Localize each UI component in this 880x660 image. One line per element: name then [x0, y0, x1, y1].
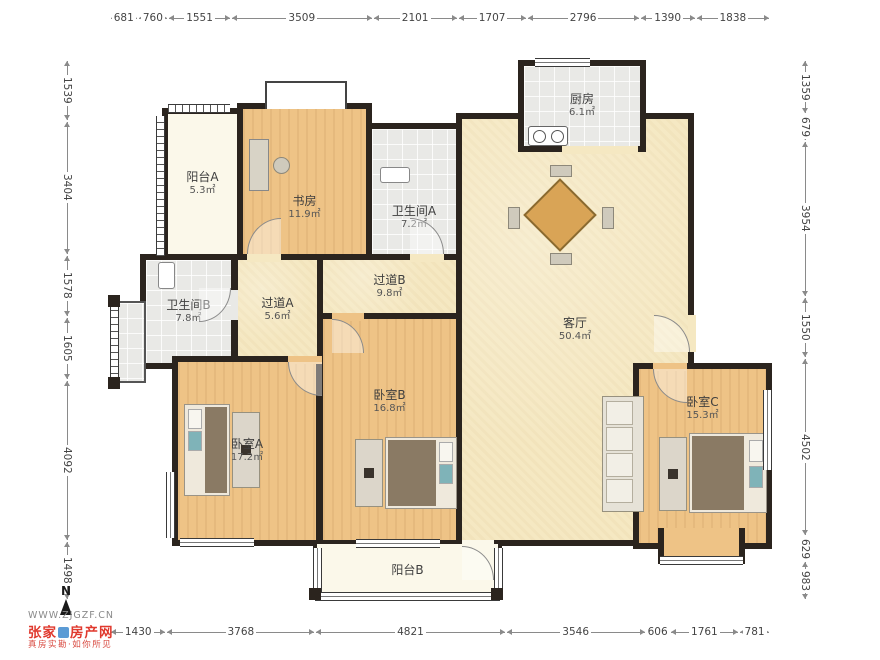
dimension-segment: 1838 [696, 10, 770, 26]
dimension-segment: 3768 [166, 624, 315, 640]
wardrobe [355, 439, 383, 507]
dimension-arrow-icon [640, 629, 645, 635]
dimension-arrow-icon [452, 15, 457, 21]
dimension-segment: 3509 [231, 10, 373, 26]
room-label-study: 书房 11.9㎡ [288, 194, 320, 222]
dimension-value: 606 [646, 626, 670, 638]
dimension-value: 1498 [61, 555, 73, 586]
dimension-segment: 1430 [110, 624, 166, 640]
dimension-arrow-icon [64, 115, 70, 120]
opening-kitchen [562, 146, 638, 154]
window-kitchen [535, 58, 590, 67]
dimension-arrow-icon [64, 381, 70, 386]
dimension-arrow-icon [367, 15, 372, 21]
room-label-living: 客厅 50.4㎡ [559, 316, 591, 344]
room-bathroom-b: 卫生间B 7.8㎡ [140, 254, 237, 369]
dimension-value: 4092 [61, 445, 73, 476]
desk-chair [273, 157, 290, 174]
dimension-value: 1707 [477, 12, 508, 24]
window-bedroom-c [660, 556, 743, 565]
dimension-arrow-icon [64, 61, 70, 66]
room-balcony-a: 阳台A 5.3㎡ [162, 108, 243, 260]
window-balcony-b-left [313, 548, 322, 592]
dimension-segment: 679 [796, 114, 814, 141]
dimension-segment: 2101 [373, 10, 458, 26]
dimension-arrow-icon [225, 15, 230, 21]
dining-table [523, 178, 597, 252]
dimension-segment: 1761 [670, 624, 740, 640]
dimension-value: 1605 [61, 333, 73, 364]
dimension-value: 3768 [226, 626, 257, 638]
dimension-arrow-icon [802, 562, 808, 567]
site-slogan: 真房实勘·如你所见 [28, 638, 112, 650]
dimension-segment: 2796 [527, 10, 640, 26]
dimension-segment: 1550 [796, 297, 814, 358]
dimension-segment: 3404 [58, 121, 76, 255]
toilet [158, 262, 175, 289]
window-bedroom-a-left [166, 472, 175, 538]
room-label-hallway-b: 过道B 9.8㎡ [373, 273, 405, 301]
bed [184, 404, 230, 496]
bed [385, 437, 457, 509]
dimension-value: 3954 [799, 203, 811, 234]
dimension-arrow-icon [64, 318, 70, 323]
dimension-arrow-icon [802, 108, 808, 113]
room-hallway-a: 过道A 5.6㎡ [232, 254, 323, 365]
dimension-arrow-icon [802, 142, 808, 147]
dimension-arrow-icon [64, 249, 70, 254]
dimension-arrow-icon [64, 535, 70, 540]
dimension-arrow-icon [671, 629, 676, 635]
dimension-segment: 1359 [796, 60, 814, 114]
dimension-value: 681 [112, 12, 136, 24]
desk [249, 139, 269, 191]
window-bedroom-a [180, 538, 254, 547]
room-label-kitchen: 厨房 6.1㎡ [569, 92, 595, 120]
dimension-value: 1390 [652, 12, 683, 24]
dimension-segment: 4092 [58, 380, 76, 541]
dimension-arrow-icon [167, 629, 172, 635]
dimension-segment: 3954 [796, 141, 814, 297]
dimension-segment: 4821 [315, 624, 505, 640]
dimension-arrow-icon [169, 15, 174, 21]
sofa [602, 396, 644, 512]
dimension-arrow-icon [802, 61, 808, 66]
dimension-segment: 1539 [58, 60, 76, 121]
dimension-row-top: 6817601551350921011707279613901838 [110, 10, 770, 26]
dimension-arrow-icon [507, 629, 512, 635]
window-balcony-b [315, 592, 500, 601]
dimension-arrow-icon [374, 15, 379, 21]
dimension-arrow-icon [802, 530, 808, 535]
bed [689, 433, 767, 513]
room-label-balcony-b: 阳台B [391, 563, 423, 578]
dimension-arrow-icon [459, 15, 464, 21]
dimension-value: 1359 [799, 72, 811, 103]
window-balcony-b-right [494, 548, 503, 592]
dimension-value: 3546 [560, 626, 591, 638]
dimension-arrow-icon [690, 15, 695, 21]
dimension-segment: 983 [796, 561, 814, 600]
window [110, 303, 119, 381]
dimension-segment: 1707 [458, 10, 527, 26]
wardrobe [659, 437, 687, 511]
room-bedroom-c: 卧室C 15.3㎡ [633, 363, 772, 549]
dimension-value: 781 [743, 626, 767, 638]
dimension-value: 1838 [718, 12, 749, 24]
dimension-segment: 681 [110, 10, 138, 26]
doorway-study [247, 254, 281, 262]
dimension-segment: 760 [138, 10, 169, 26]
dimension-value: 1551 [184, 12, 215, 24]
bay-window-study [265, 81, 347, 109]
window-balcony-a-top [168, 104, 230, 113]
dimension-arrow-icon [64, 374, 70, 379]
room-label-bedroom-b: 卧室B 16.8㎡ [373, 388, 405, 416]
room-label-hallway-a: 过道A 5.6㎡ [261, 296, 293, 324]
wall-post [491, 588, 503, 600]
dimension-segment: 1551 [168, 10, 231, 26]
dimension-arrow-icon [802, 352, 808, 357]
chair [550, 253, 572, 265]
dimension-column-right: 1359679395415504502629983 [796, 60, 814, 600]
dimension-arrow-icon [64, 256, 70, 261]
chair [550, 165, 572, 177]
dimension-arrow-icon [641, 15, 646, 21]
dimension-arrow-icon [697, 15, 702, 21]
window-balcony-a [156, 116, 165, 256]
dimension-arrow-icon [64, 122, 70, 127]
dimension-value: 2101 [400, 12, 431, 24]
dimension-arrow-icon [232, 15, 237, 21]
dimension-arrow-icon [802, 594, 808, 599]
dimension-arrow-icon [764, 15, 769, 21]
dimension-value: 4502 [799, 432, 811, 463]
dimension-segment: 3546 [506, 624, 646, 640]
dimension-arrow-icon [316, 629, 321, 635]
dimension-value: 3509 [286, 12, 317, 24]
dimension-arrow-icon [309, 629, 314, 635]
dimension-segment: 4502 [796, 358, 814, 536]
dimension-arrow-icon [64, 311, 70, 316]
dimension-arrow-icon [733, 629, 738, 635]
washbasin [380, 167, 410, 183]
dimension-column-left: 153934041578160540921498 [58, 60, 76, 600]
dimension-value: 1578 [61, 270, 73, 301]
dimension-segment: 606 [646, 624, 670, 640]
dimension-value: 679 [799, 115, 811, 139]
room-hallway-b: 过道B 9.8㎡ [317, 254, 462, 319]
dimension-segment: 629 [796, 536, 814, 561]
window-bedroom-c-right [763, 390, 772, 470]
room-label-bedroom-a: 卧室A 17.2㎡ [231, 437, 263, 465]
wall-post [108, 377, 120, 389]
dimension-arrow-icon [160, 629, 165, 635]
dimension-value: 3404 [61, 172, 73, 203]
floorplan-page: { "dimensions": { "top": ["681","760","1… [0, 0, 880, 660]
chair [602, 207, 614, 229]
room-label-balcony-a: 阳台A 5.3㎡ [186, 170, 218, 198]
dimension-value: 760 [141, 12, 165, 24]
dimension-arrow-icon [802, 291, 808, 296]
dimension-value: 1550 [799, 312, 811, 343]
wall-post [309, 588, 321, 600]
dimension-arrow-icon [634, 15, 639, 21]
dimension-segment: 1390 [640, 10, 696, 26]
wall-post [108, 295, 120, 307]
chair [508, 207, 520, 229]
dimension-arrow-icon [521, 15, 526, 21]
dimension-arrow-icon [64, 542, 70, 547]
dimension-arrow-icon [528, 15, 533, 21]
doorway-bathroom-a [410, 254, 444, 262]
north-label: N [60, 584, 72, 598]
doorway-bathroom-b [231, 290, 238, 320]
dimension-segment: 1605 [58, 317, 76, 380]
website-url: WWW.ZJGZF.CN [28, 610, 114, 621]
dimension-value: 629 [799, 537, 811, 561]
floorplan-canvas: 客厅 50.4㎡ 过道A 5.6㎡ 过道B 9.8㎡ 卫生间B 7.8㎡ [110, 60, 770, 600]
dimension-value: 1430 [123, 626, 154, 638]
window-bedroom-b [356, 539, 440, 548]
dimension-arrow-icon [500, 629, 505, 635]
dimension-segment: 1578 [58, 255, 76, 317]
dimension-segment: 781 [739, 624, 770, 640]
room-kitchen: 厨房 6.1㎡ [518, 60, 646, 152]
dimension-value: 2796 [568, 12, 599, 24]
dimension-value: 1539 [61, 75, 73, 106]
dimension-value: 1761 [689, 626, 720, 638]
dimension-arrow-icon [802, 359, 808, 364]
room-label-bedroom-c: 卧室C 15.3㎡ [686, 395, 718, 423]
dimension-value: 983 [799, 569, 811, 593]
house-icon [58, 627, 69, 638]
dimension-value: 4821 [395, 626, 426, 638]
dimension-arrow-icon [802, 298, 808, 303]
stove [528, 126, 568, 146]
dimension-row-bottom: 14303768482135466061761781 [110, 624, 770, 640]
